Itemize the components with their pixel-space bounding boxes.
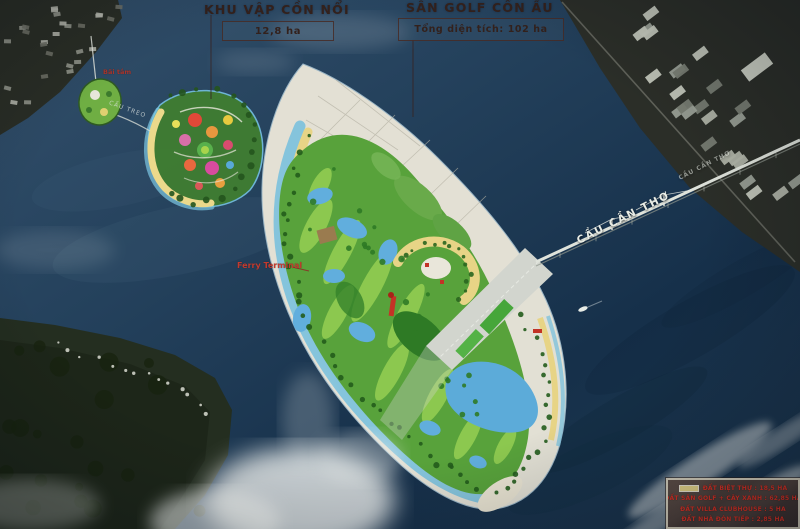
masterplan-photo: KHU VẬP CỒN NỔI 12,8 ha SÂN GOLF CỒN ẤU … — [0, 0, 800, 529]
map-canvas — [0, 0, 800, 529]
con-noi-island — [146, 86, 262, 208]
